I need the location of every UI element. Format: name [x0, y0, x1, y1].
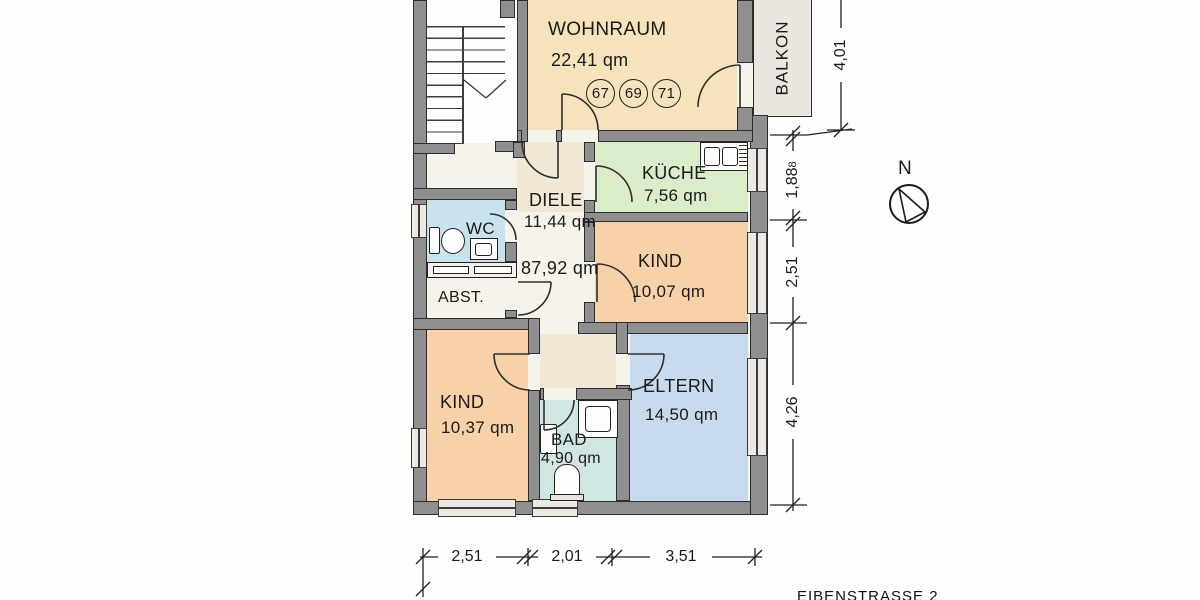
kueche-window	[747, 148, 767, 192]
kind-bottom-left-window	[411, 428, 427, 468]
shower-basin-icon	[585, 406, 611, 432]
wall-wc-right-a	[505, 200, 517, 210]
wc-label: WC	[466, 219, 495, 239]
eltern-window	[747, 358, 767, 456]
wc-sink-basin-icon	[475, 243, 492, 256]
kind-top-window	[747, 232, 767, 314]
wall-landing-stub	[513, 142, 525, 158]
closet-door-b	[474, 266, 512, 274]
wc-left-window	[411, 204, 427, 238]
bad-toilet-tank-icon	[550, 494, 584, 501]
wall-kueche-bottom	[584, 212, 748, 222]
wall-kind-bottom-right-b	[528, 390, 540, 501]
wall-wohnraum-bottom-a	[517, 130, 522, 142]
stair-treads-right	[463, 26, 505, 78]
kind-bottom-label: KIND	[440, 392, 484, 413]
wall-eltern-left-upper	[616, 322, 628, 354]
wall-kind-bottom-right-a	[528, 318, 540, 354]
floorplan-canvas: WOHNRAUM 22,41 qm 676971 KÜCHE 7,56 qm D…	[0, 0, 1200, 600]
wall-abst-bottom	[413, 318, 530, 330]
wc-toilet-bowl-icon	[441, 228, 465, 254]
wall-wohnraum-bottom-b	[556, 130, 562, 142]
wall-wohnraum-bottom-c	[598, 130, 753, 142]
dim-right-251: 2,51	[783, 224, 803, 320]
wohnraum-area: 22,41 qm	[551, 50, 628, 71]
kueche-label: KÜCHE	[642, 163, 707, 184]
closet-door-a	[433, 266, 469, 274]
dim-right-401: 4,01	[831, 7, 851, 103]
stair-divider	[462, 26, 464, 144]
stair-treads-left	[427, 26, 463, 144]
unit-number-67: 67	[586, 79, 615, 108]
kind-bottom-area: 10,37 qm	[441, 418, 514, 438]
dim-bottom-251: 2,51	[437, 548, 497, 566]
total-area-label: 87,92 qm	[521, 258, 598, 279]
kitchen-sink-right-icon	[722, 147, 738, 166]
room-kind-bottom	[427, 330, 528, 501]
wall-kueche-left-a	[584, 142, 595, 162]
eltern-area: 14,50 qm	[645, 405, 718, 425]
wall-bad-right	[616, 385, 630, 501]
dim-right-188: 1,888	[783, 132, 803, 228]
kueche-area: 7,56 qm	[644, 186, 708, 206]
diele-label: DIELE	[529, 190, 583, 211]
lobby-floor-patch	[540, 334, 616, 388]
kind-top-area: 10,07 qm	[632, 282, 705, 302]
balkon-label: BALKON	[753, 0, 812, 115]
wall-wc-top	[413, 188, 517, 200]
dim-bottom-201: 2,01	[537, 548, 597, 566]
dim-right-426: 4,26	[783, 364, 803, 460]
stove-icon	[739, 145, 747, 168]
wall-abst-right	[505, 310, 517, 318]
wall-bad-top-b	[576, 388, 632, 400]
dim-bottom-351: 3,51	[651, 548, 711, 566]
kind-bottom-window	[438, 499, 516, 517]
wall-bad-top-a	[540, 388, 544, 400]
kind-top-label: KIND	[638, 251, 682, 272]
street-label: EIBENSTRASSE 2	[797, 588, 939, 600]
wall-stair-divider	[517, 0, 528, 142]
wall-wc-right-b	[505, 242, 517, 262]
bad-label: BAD	[551, 430, 587, 450]
wall-stair-bottom-stub	[413, 143, 455, 154]
north-compass-icon	[890, 185, 928, 223]
bad-toilet-icon	[554, 464, 580, 496]
unit-numbers: 676971	[586, 79, 685, 108]
abst-label: ABST.	[438, 289, 484, 307]
wall-wohnraum-right-upper	[737, 0, 753, 63]
unit-number-69: 69	[619, 79, 648, 108]
unit-number-71: 71	[652, 79, 681, 108]
wall-stair-top-stub	[500, 0, 515, 18]
bad-area: 4,90 qm	[541, 450, 601, 468]
diele-area: 11,44 qm	[524, 212, 596, 232]
room-kind-top	[595, 222, 748, 322]
eltern-label: ELTERN	[643, 376, 714, 397]
bad-window	[532, 499, 578, 517]
wohnraum-label: WOHNRAUM	[548, 19, 667, 41]
wc-toilet-tank-icon	[429, 227, 440, 254]
wall-kind-top-bottom	[578, 322, 748, 334]
north-label: N	[898, 158, 912, 180]
